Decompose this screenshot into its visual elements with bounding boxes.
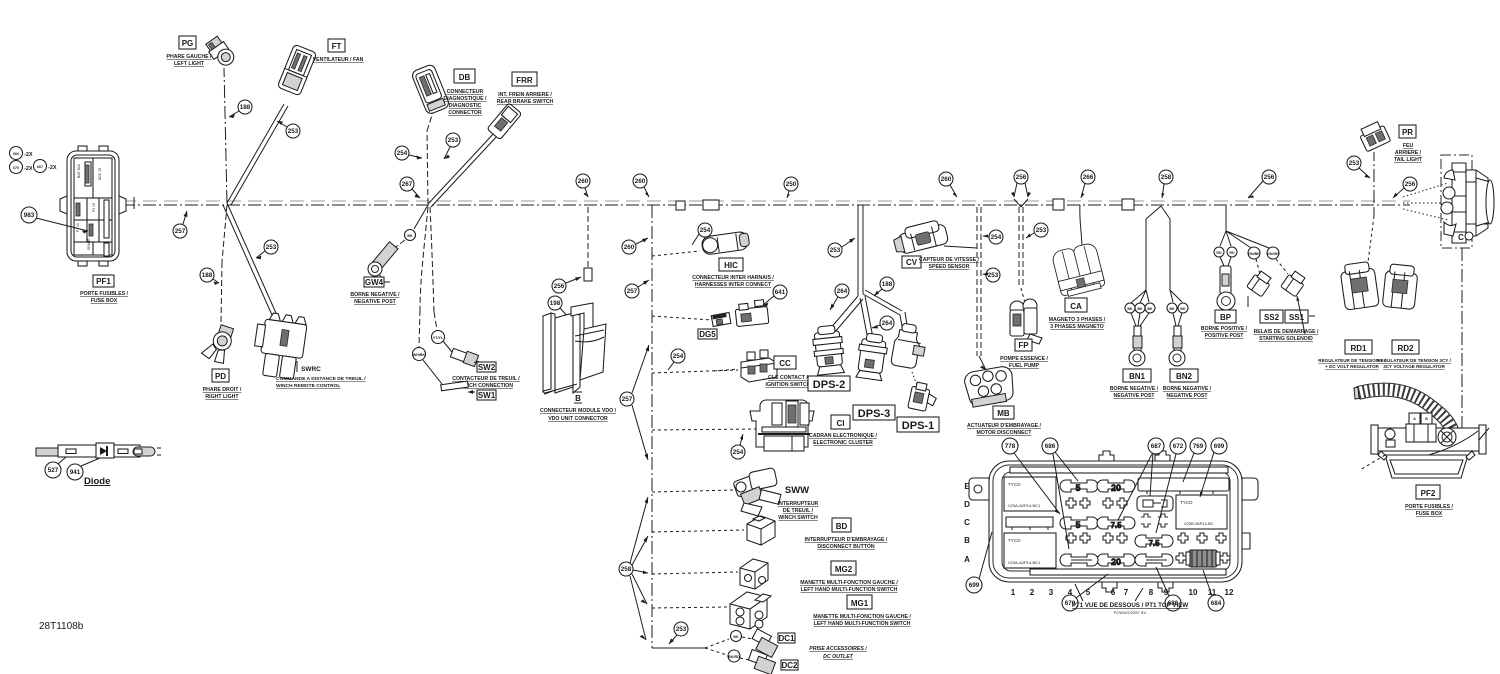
- svg-text:DC OUTLET: DC OUTLET: [823, 654, 854, 660]
- svg-text:CADRAN ELECTRONIQUE /: CADRAN ELECTRONIQUE /: [809, 433, 878, 439]
- svg-text:WINCH SWITCH: WINCH SWITCH: [778, 515, 818, 521]
- svg-text:F2 15: F2 15: [92, 203, 96, 212]
- svg-text:GW4: GW4: [365, 278, 384, 287]
- svg-text:256: 256: [1264, 174, 1275, 181]
- svg-text:TYCO: TYCO: [1008, 538, 1021, 543]
- svg-text:260: 260: [624, 244, 635, 251]
- svg-text:CONTACTEUR DE TREUIL /: CONTACTEUR DE TREUIL /: [452, 376, 520, 382]
- svg-text:CONNECTEUR MODULE VDO /: CONNECTEUR MODULE VDO /: [540, 408, 617, 414]
- svg-text:RD2: RD2: [1397, 344, 1414, 353]
- svg-text:DG5: DG5: [699, 330, 716, 339]
- svg-text:ACC 15: ACC 15: [98, 168, 102, 180]
- svg-text:BK: BK: [733, 635, 739, 639]
- svg-text:5: 5: [1075, 520, 1080, 530]
- svg-text:REAR BRAKE SWITCH: REAR BRAKE SWITCH: [497, 99, 554, 105]
- svg-text:699: 699: [1214, 443, 1225, 450]
- svg-text:260: 260: [578, 178, 589, 185]
- svg-text:CONNECTOR: CONNECTOR: [448, 110, 482, 116]
- svg-text:253: 253: [288, 128, 299, 135]
- svg-text:DIAGNOSTIQUE /: DIAGNOSTIQUE /: [444, 96, 488, 102]
- svg-text:HARNESSES INTER CONNECT: HARNESSES INTER CONNECT: [695, 282, 772, 288]
- svg-text:FUEL PUMP: FUEL PUMP: [1009, 363, 1039, 369]
- svg-text:687: 687: [1151, 443, 1162, 450]
- svg-text:A: A: [1413, 417, 1416, 421]
- svg-text:188: 188: [882, 281, 893, 288]
- svg-text:253: 253: [676, 626, 687, 633]
- svg-text:LEFT HAND MULTI-FUNCTION SWITC: LEFT HAND MULTI-FUNCTION SWITCH: [814, 621, 911, 627]
- svg-text:BAT 30A: BAT 30A: [77, 164, 81, 178]
- svg-text:REGULATEUR DE TENSION + /: REGULATEUR DE TENSION + /: [1318, 358, 1386, 363]
- svg-text:POSITIVE POST: POSITIVE POST: [1205, 333, 1245, 339]
- svg-text:267: 267: [402, 181, 413, 188]
- svg-text:188: 188: [240, 104, 251, 111]
- svg-text:PD: PD: [215, 372, 226, 381]
- svg-text:CLE CONTACT /: CLE CONTACT /: [768, 375, 808, 381]
- svg-text:LEFT LIGHT: LEFT LIGHT: [174, 61, 205, 67]
- svg-text:V23A-A2P14-BC1: V23A-A2P14-BC1: [1008, 560, 1041, 565]
- svg-text:-2X: -2X: [48, 165, 57, 171]
- svg-text:DC2: DC2: [781, 661, 798, 670]
- svg-text:V23B-36P14-BC: V23B-36P14-BC: [1184, 521, 1214, 526]
- svg-text:684: 684: [1211, 600, 1222, 607]
- svg-text:258: 258: [1161, 174, 1172, 181]
- svg-text:PHARE DROIT /: PHARE DROIT /: [203, 387, 242, 393]
- svg-text:257: 257: [175, 228, 186, 235]
- svg-text:SPEED SENSOR: SPEED SENSOR: [929, 264, 970, 270]
- svg-text:SPARE: SPARE: [87, 238, 91, 250]
- svg-text:20: 20: [1111, 483, 1121, 493]
- svg-text:2: 2: [1030, 588, 1035, 597]
- svg-text:V23A-A2P14-BC1: V23A-A2P14-BC1: [1008, 503, 1041, 508]
- svg-text:Diode: Diode: [84, 476, 110, 487]
- svg-text:FEU: FEU: [1403, 143, 1414, 149]
- svg-text:-2X: -2X: [24, 166, 33, 172]
- svg-text:BK: BK: [1180, 307, 1186, 311]
- svg-text:C: C: [964, 518, 970, 527]
- svg-text:256: 256: [1405, 181, 1416, 188]
- svg-text:PR: PR: [1402, 128, 1413, 137]
- svg-text:3 PHASES MAGNETO: 3 PHASES MAGNETO: [1050, 324, 1104, 330]
- svg-text:DPS-1: DPS-1: [902, 420, 934, 432]
- svg-text:PG: PG: [182, 39, 194, 48]
- svg-text:PHARE GAUCHE /: PHARE GAUCHE /: [167, 54, 213, 60]
- svg-text:RD: RD: [1229, 251, 1235, 255]
- svg-text:527: 527: [48, 467, 59, 474]
- svg-text:250: 250: [786, 181, 797, 188]
- svg-text:254: 254: [991, 234, 1002, 241]
- svg-text:SW1: SW1: [478, 391, 496, 400]
- svg-text:260: 260: [941, 176, 952, 183]
- svg-text:VDO UNIT CONNECTOR: VDO UNIT CONNECTOR: [548, 416, 608, 422]
- svg-text:CI: CI: [837, 419, 845, 428]
- svg-text:BN1: BN1: [1129, 372, 1146, 381]
- svg-text:ELECTRONIC CLUSTER: ELECTRONIC CLUSTER: [813, 440, 873, 446]
- svg-text:STARTING SOLENOID: STARTING SOLENOID: [1259, 336, 1313, 342]
- svg-text:7: 7: [1124, 588, 1129, 597]
- svg-text:-2X: -2X: [24, 152, 33, 158]
- svg-text:666: 666: [13, 152, 19, 156]
- svg-text:BK: BK: [1127, 307, 1133, 311]
- svg-text:1: 1: [1011, 588, 1016, 597]
- svg-text:RIGHT LIGHT: RIGHT LIGHT: [205, 394, 239, 400]
- svg-text:3CY VOLTAGE REGULATOR: 3CY VOLTAGE REGULATOR: [1383, 364, 1445, 369]
- svg-text:TYCO: TYCO: [1180, 500, 1193, 505]
- svg-text:DC1: DC1: [778, 634, 795, 643]
- svg-text:RD: RD: [1216, 251, 1222, 255]
- svg-text:LEFT HAND MULTI-FUNCTION SWITC: LEFT HAND MULTI-FUNCTION SWITCH: [801, 587, 898, 593]
- svg-text:VT/YL: VT/YL: [433, 336, 444, 340]
- svg-text:BK: BK: [1147, 307, 1153, 311]
- svg-text:667: 667: [37, 165, 43, 169]
- svg-text:PF2: PF2: [1421, 489, 1436, 498]
- svg-text:B: B: [1425, 417, 1428, 421]
- svg-text:RELAIS DE DEMARRAGE /: RELAIS DE DEMARRAGE /: [1254, 329, 1319, 335]
- svg-text:SW2: SW2: [478, 363, 496, 372]
- svg-text:INTERRUPTEUR D'EMBRAYAGE /: INTERRUPTEUR D'EMBRAYAGE /: [805, 537, 888, 543]
- svg-text:254: 254: [397, 150, 408, 157]
- svg-text:CV: CV: [906, 258, 918, 267]
- svg-text:CC: CC: [779, 359, 791, 368]
- svg-text:PT1 VUE DE DESSOUS / PT1 TOP V: PT1 VUE DE DESSOUS / PT1 TOP VIEW: [1072, 602, 1188, 609]
- svg-text:DIAGNOSTIC: DIAGNOSTIC: [449, 103, 482, 109]
- svg-text:REGULATEUR DE TENSION 3CY /: REGULATEUR DE TENSION 3CY /: [1377, 358, 1451, 363]
- svg-text:258: 258: [621, 566, 632, 573]
- svg-text:POMPE ESSENCE /: POMPE ESSENCE /: [1000, 356, 1048, 362]
- svg-text:MANETTE MULTI-FONCTION GAUCHE: MANETTE MULTI-FONCTION GAUCHE /: [800, 580, 898, 586]
- svg-text:253: 253: [830, 247, 841, 254]
- svg-text:IGNITION SWITCH: IGNITION SWITCH: [766, 382, 811, 388]
- svg-text:DISCONNECT BUTTON: DISCONNECT BUTTON: [817, 544, 875, 550]
- svg-text:FCW107/2297 SV: FCW107/2297 SV: [1114, 610, 1147, 615]
- svg-text:257: 257: [627, 288, 638, 295]
- svg-text:PF1: PF1: [96, 277, 111, 286]
- svg-text:253: 253: [1036, 227, 1047, 234]
- svg-text:HIC: HIC: [724, 261, 738, 270]
- svg-text:BD: BD: [836, 522, 848, 531]
- svg-text:3: 3: [1049, 588, 1054, 597]
- svg-text:PRISE ACCESSOIRES /: PRISE ACCESSOIRES /: [809, 646, 867, 652]
- svg-text:7.5: 7.5: [1110, 521, 1122, 530]
- svg-text:COMMANDE A DISTANCE DE TREUIL: COMMANDE A DISTANCE DE TREUIL /: [276, 376, 366, 382]
- svg-text:257: 257: [622, 396, 633, 403]
- svg-text:12: 12: [1225, 588, 1234, 597]
- svg-text:256: 256: [554, 283, 565, 290]
- svg-text:BORNE NEGATIVE /: BORNE NEGATIVE /: [1163, 386, 1212, 392]
- svg-text:260: 260: [635, 178, 646, 185]
- svg-text:MG1: MG1: [851, 599, 869, 608]
- svg-text:CAPTEUR DE VITESSE /: CAPTEUR DE VITESSE /: [919, 257, 980, 263]
- svg-text:BK: BK: [407, 234, 413, 238]
- svg-text:BORNE NEGATIVE /: BORNE NEGATIVE /: [1110, 386, 1159, 392]
- svg-text:NEGATIVE POST: NEGATIVE POST: [1114, 393, 1156, 399]
- svg-text:254: 254: [673, 353, 684, 360]
- svg-text:TYCO: TYCO: [1008, 482, 1021, 487]
- svg-text:941: 941: [70, 469, 81, 476]
- svg-text:BORNE NEGATIVE /: BORNE NEGATIVE /: [350, 292, 400, 298]
- svg-text:A: A: [964, 555, 970, 564]
- svg-text:E: E: [964, 482, 970, 491]
- svg-text:FUSE BOX: FUSE BOX: [1416, 511, 1443, 517]
- svg-text:NEGATIVE POST: NEGATIVE POST: [354, 299, 397, 305]
- svg-text:SWW: SWW: [785, 485, 809, 496]
- svg-text:BP: BP: [1220, 313, 1232, 322]
- svg-text:253: 253: [988, 272, 999, 279]
- svg-text:PORTE FUSIBLES /: PORTE FUSIBLES /: [80, 291, 128, 297]
- svg-text:253: 253: [448, 137, 459, 144]
- svg-text:686: 686: [1045, 443, 1056, 450]
- svg-text:MANETTE MULTI-FONCTION GAUCHE: MANETTE MULTI-FONCTION GAUCHE /: [813, 614, 911, 620]
- svg-text:BK: BK: [1137, 307, 1143, 311]
- svg-text:769: 769: [1193, 443, 1204, 450]
- svg-text:5: 5: [1075, 483, 1080, 493]
- svg-text:DPS-2: DPS-2: [813, 379, 845, 391]
- svg-text:254: 254: [700, 227, 711, 234]
- svg-text:SS2: SS2: [1264, 313, 1280, 322]
- svg-text:778: 778: [1005, 443, 1016, 450]
- svg-text:641: 641: [775, 289, 786, 296]
- svg-text:TAIL LIGHT: TAIL LIGHT: [1394, 157, 1423, 163]
- svg-text:20: 20: [1111, 557, 1121, 567]
- svg-text:FT: FT: [332, 42, 342, 51]
- svg-text:MG2: MG2: [835, 565, 853, 574]
- svg-text:BK/RD: BK/RD: [728, 655, 740, 659]
- svg-text:BK: BK: [1169, 307, 1175, 311]
- svg-text:NEGATIVE POST: NEGATIVE POST: [1167, 393, 1209, 399]
- svg-text:INT. FREIN ARRIERE /: INT. FREIN ARRIERE /: [498, 92, 552, 98]
- svg-text:DE TREUIL /: DE TREUIL /: [783, 508, 814, 514]
- svg-text:B: B: [964, 536, 970, 545]
- svg-text:266: 266: [1083, 174, 1094, 181]
- svg-text:253: 253: [266, 244, 277, 251]
- svg-text:RD1: RD1: [1350, 344, 1367, 353]
- svg-text:C: C: [1458, 233, 1464, 242]
- svg-text:28T1108b: 28T1108b: [39, 621, 84, 632]
- svg-text:264: 264: [837, 288, 848, 295]
- svg-text:BORNE POSITIVE /: BORNE POSITIVE /: [1201, 326, 1248, 332]
- svg-text:ARRIERE /: ARRIERE /: [1395, 150, 1422, 156]
- svg-text:699: 699: [969, 582, 980, 589]
- svg-text:983: 983: [24, 212, 35, 219]
- svg-text:INTERRUPTEUR: INTERRUPTEUR: [778, 501, 819, 507]
- svg-text:7.5: 7.5: [1148, 539, 1160, 548]
- svg-text:B: B: [575, 394, 581, 403]
- svg-text:VENTILATEUR / FAN: VENTILATEUR / FAN: [313, 57, 364, 63]
- svg-text:188: 188: [202, 272, 213, 279]
- svg-text:CA: CA: [1070, 302, 1082, 311]
- svg-text:ACTUATEUR D'EMBRAYAGE /: ACTUATEUR D'EMBRAYAGE /: [967, 423, 1042, 429]
- svg-text:SWRC: SWRC: [301, 366, 321, 373]
- svg-text:6: 6: [1111, 588, 1116, 597]
- svg-text:253: 253: [1349, 160, 1360, 167]
- svg-text:MOTOR DISCONNECT: MOTOR DISCONNECT: [977, 430, 1033, 436]
- svg-text:198: 198: [550, 300, 561, 307]
- svg-text:FUSE BOX: FUSE BOX: [91, 298, 118, 304]
- svg-text:10: 10: [1189, 588, 1198, 597]
- svg-text:GN/GN: GN/GN: [1267, 252, 1279, 256]
- svg-text:D: D: [964, 500, 970, 509]
- svg-text:FRR: FRR: [516, 76, 533, 85]
- svg-text:GN/BK: GN/BK: [1248, 252, 1260, 256]
- svg-text:256: 256: [1016, 174, 1027, 181]
- svg-text:F1 10: F1 10: [76, 223, 80, 232]
- svg-text:BN2: BN2: [1176, 372, 1193, 381]
- svg-text:CONNECTEUR: CONNECTEUR: [447, 89, 484, 95]
- svg-text:WINCH REMOTE CONTROL: WINCH REMOTE CONTROL: [276, 383, 340, 389]
- svg-text:DPS-3: DPS-3: [858, 408, 890, 420]
- svg-text:264: 264: [882, 320, 893, 327]
- svg-text:8: 8: [1149, 588, 1154, 597]
- svg-text:CONNECTEUR INTER HARNAIS /: CONNECTEUR INTER HARNAIS /: [692, 275, 774, 281]
- svg-text:672: 672: [1173, 443, 1184, 450]
- svg-text:FP: FP: [1018, 341, 1029, 350]
- svg-text:254: 254: [733, 449, 744, 456]
- svg-text:MAGNETO 3 PHASES /: MAGNETO 3 PHASES /: [1049, 317, 1106, 323]
- svg-text:DB: DB: [459, 73, 471, 82]
- svg-text:670: 670: [13, 166, 19, 170]
- svg-text:MB: MB: [997, 409, 1010, 418]
- svg-text:WH/BK: WH/BK: [413, 353, 426, 357]
- svg-text:+ DC VOLT REGULATOR: + DC VOLT REGULATOR: [1325, 364, 1379, 369]
- svg-text:PORTE FUSIBLES /: PORTE FUSIBLES /: [1405, 504, 1453, 510]
